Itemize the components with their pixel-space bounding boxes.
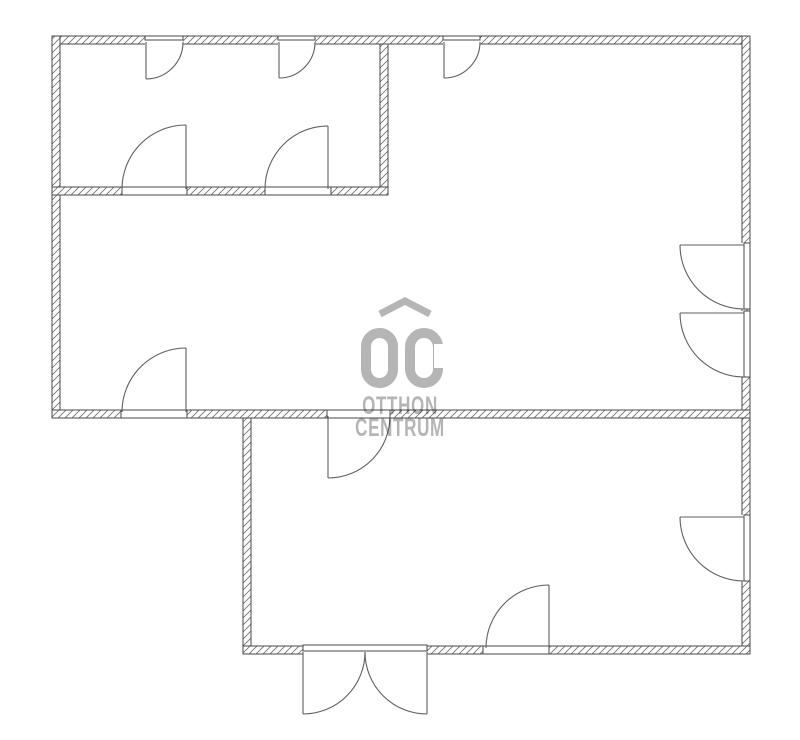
openings-layer (121, 35, 751, 655)
walls-layer (52, 36, 750, 654)
door-top-3 (444, 42, 480, 78)
floor-plan-drawing (0, 0, 800, 740)
opening-right-2 (741, 311, 751, 377)
opening-smallroom-2 (265, 186, 331, 196)
door-smallroom-2 (265, 126, 328, 189)
door-top-2 (279, 42, 315, 78)
opening-right-3 (741, 515, 751, 581)
door-top-1 (146, 42, 183, 79)
doors-layer (122, 42, 744, 714)
small-room-divider-wall (380, 44, 388, 187)
opening-smallroom-1 (122, 186, 187, 196)
door-bottom-single (486, 585, 549, 648)
left-exterior-wall (52, 36, 60, 418)
floor-plan: OTTHON CENTRUM (0, 0, 800, 740)
opening-right-1 (741, 243, 751, 309)
door-bottom-room (328, 416, 390, 478)
door-right-2 (680, 313, 744, 377)
opening-bottom-single (483, 645, 549, 655)
door-entry-left (303, 652, 365, 714)
bottom-room-left-wall (243, 418, 251, 654)
door-right-3 (680, 517, 744, 581)
door-middle-left (122, 348, 186, 412)
opening-bottom-room (327, 409, 390, 419)
door-smallroom-1 (122, 125, 186, 189)
door-right-1 (680, 245, 744, 309)
door-entry-right (365, 652, 427, 714)
small-room-bottom-wall (52, 187, 388, 195)
opening-middle-left (121, 409, 187, 419)
